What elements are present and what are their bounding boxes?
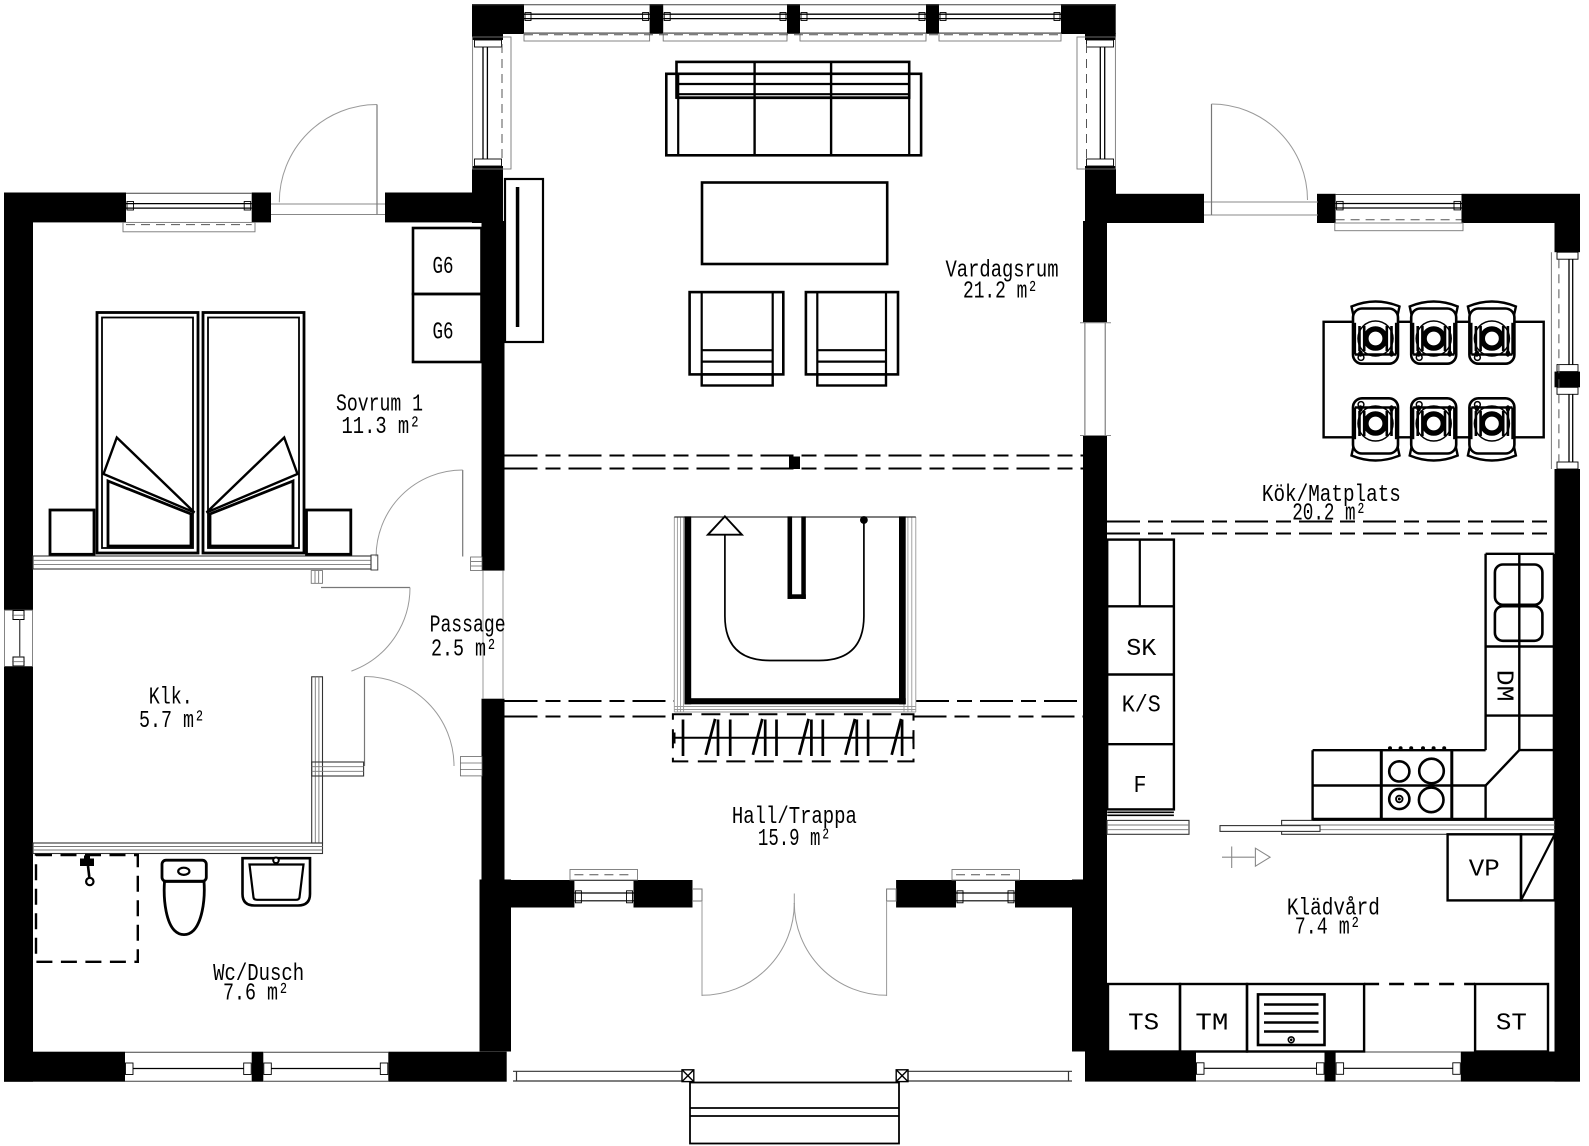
svg-text:5.7 m²: 5.7 m² [139, 708, 205, 735]
svg-text:VP: VP [1469, 857, 1500, 884]
svg-text:F: F [1134, 773, 1147, 800]
svg-text:Passage: Passage [430, 613, 506, 640]
svg-text:TM: TM [1195, 1011, 1228, 1038]
svg-text:2.5 m²: 2.5 m² [431, 637, 497, 664]
svg-text:7.4 m²: 7.4 m² [1295, 915, 1361, 942]
svg-text:K/S: K/S [1122, 693, 1161, 720]
svg-text:DM: DM [1490, 670, 1517, 702]
svg-text:21.2 m²: 21.2 m² [963, 279, 1038, 306]
svg-text:G6: G6 [433, 320, 454, 347]
svg-text:20.2 m²: 20.2 m² [1292, 501, 1366, 528]
svg-text:11.3 m²: 11.3 m² [342, 414, 421, 441]
svg-text:ST: ST [1496, 1011, 1527, 1038]
svg-text:SK: SK [1126, 636, 1157, 663]
svg-text:G6: G6 [433, 254, 454, 281]
svg-text:7.6 m²: 7.6 m² [223, 981, 289, 1008]
svg-text:15.9 m²: 15.9 m² [758, 826, 831, 853]
svg-text:TS: TS [1128, 1011, 1159, 1038]
